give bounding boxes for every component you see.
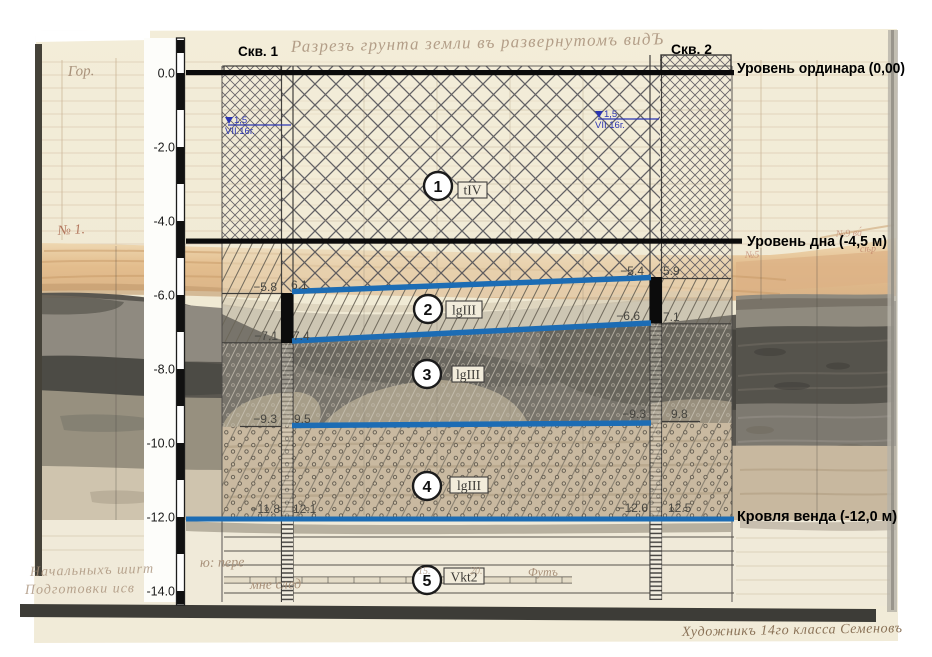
- svg-text:-4.0: -4.0: [153, 215, 175, 229]
- svg-text:−5.4: −5.4: [620, 264, 644, 278]
- svg-text:Уровень дна (-4,5 м): Уровень дна (-4,5 м): [747, 233, 887, 250]
- svg-text:VII.16г.: VII.16г.: [225, 126, 255, 137]
- svg-text:Уровень ординара (0,00): Уровень ординара (0,00): [737, 60, 905, 77]
- svg-text:−9.3: −9.3: [622, 407, 646, 421]
- svg-text:15.: 15.: [418, 566, 431, 577]
- svg-text:№5: №5: [744, 250, 760, 262]
- svg-text:12.5: 12.5: [668, 501, 692, 515]
- svg-text:lgIII: lgIII: [452, 303, 476, 318]
- svg-text:1,5: 1,5: [604, 109, 617, 120]
- svg-text:lgIII: lgIII: [456, 367, 480, 382]
- svg-text:-12.0: -12.0: [147, 511, 176, 525]
- svg-text:−11.8: −11.8: [251, 502, 281, 516]
- svg-text:Скв. 2: Скв. 2: [671, 41, 712, 57]
- svg-text:lgIII: lgIII: [457, 478, 481, 493]
- svg-text:−6.6: −6.6: [616, 309, 640, 323]
- svg-text:7.1: 7.1: [663, 310, 680, 324]
- svg-text:9.5: 9.5: [294, 412, 311, 426]
- svg-text:0.0: 0.0: [158, 67, 175, 81]
- svg-text:20.: 20.: [470, 566, 483, 577]
- svg-text:Кровля венда (-12,0 м): Кровля венда (-12,0 м): [737, 508, 897, 525]
- svg-text:−5.8: −5.8: [253, 280, 277, 294]
- svg-text:-6.0: -6.0: [153, 289, 175, 303]
- svg-text:12.1: 12.1: [293, 502, 317, 516]
- svg-text:−7.1: −7.1: [254, 329, 278, 343]
- svg-text:1: 1: [434, 179, 443, 196]
- svg-text:VII.16г.: VII.16г.: [595, 120, 625, 131]
- svg-text:5.9: 5.9: [663, 264, 680, 278]
- svg-text:ю: пере: ю: пере: [200, 555, 245, 571]
- svg-text:-10.0: -10.0: [147, 437, 176, 451]
- svg-text:−9.3: −9.3: [253, 412, 277, 426]
- svg-text:Футъ: Футъ: [528, 565, 558, 579]
- svg-text:2: 2: [424, 302, 433, 319]
- svg-text:-14.0: -14.0: [147, 585, 176, 599]
- svg-text:-2.0: -2.0: [153, 141, 175, 155]
- svg-text:9.8: 9.8: [671, 407, 688, 421]
- svg-text:мне след: мне след: [249, 577, 301, 593]
- svg-text:4: 4: [423, 479, 432, 496]
- svg-text:-8.0: -8.0: [153, 363, 175, 377]
- svg-text:7.4: 7.4: [293, 329, 310, 343]
- svg-text:1,5: 1,5: [234, 115, 247, 126]
- svg-text:Подготовки исв: Подготовки исв: [24, 581, 135, 598]
- svg-text:3: 3: [423, 367, 432, 384]
- svg-text:tIV: tIV: [464, 183, 482, 198]
- svg-text:№ 1.: № 1.: [56, 222, 85, 239]
- svg-text:Скв. 1: Скв. 1: [238, 43, 278, 59]
- svg-text:6.1: 6.1: [291, 278, 308, 292]
- svg-text:Гор.: Гор.: [67, 63, 95, 80]
- svg-text:−12.0: −12.0: [618, 501, 649, 515]
